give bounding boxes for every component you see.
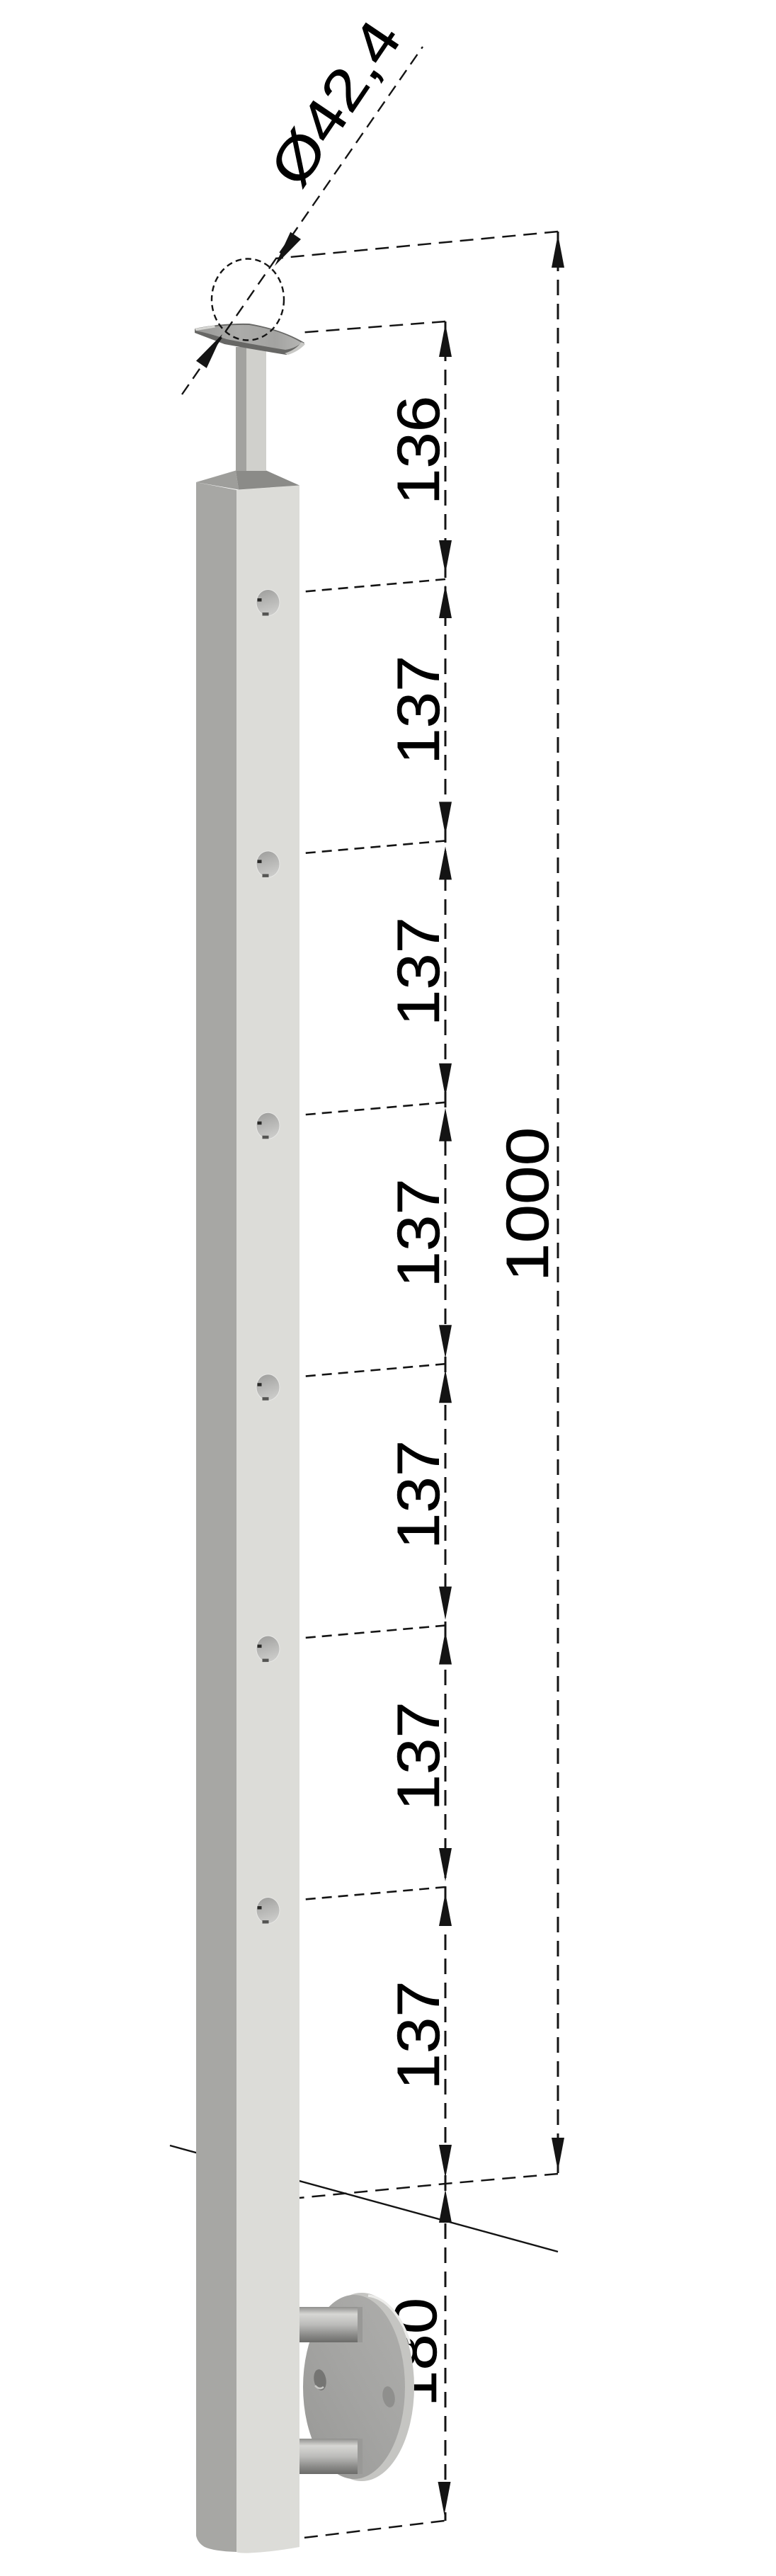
svg-text:137: 137 bbox=[385, 1440, 452, 1549]
svg-text:137: 137 bbox=[385, 1178, 452, 1287]
svg-text:1000: 1000 bbox=[495, 1127, 561, 1282]
svg-text:137: 137 bbox=[385, 1981, 452, 2090]
svg-text:137: 137 bbox=[385, 656, 452, 765]
svg-text:137: 137 bbox=[385, 1702, 452, 1811]
svg-text:137: 137 bbox=[385, 917, 452, 1026]
svg-text:136: 136 bbox=[385, 396, 452, 505]
